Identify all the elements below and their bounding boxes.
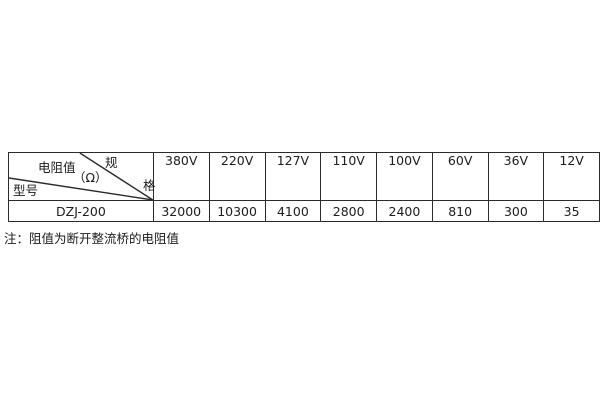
value-cell: 810 — [432, 201, 488, 222]
value-cell: 32000 — [153, 201, 209, 222]
column-header-100v: 100V — [377, 153, 433, 201]
corner-label-model: 型号 — [13, 185, 38, 198]
resistance-spec-table: 规 格 电阻值 （Ω） 型号 380V 220V 127V 110V 100V … — [8, 152, 600, 222]
note-text: 注：阻值为断开整流桥的电阻值 — [4, 228, 179, 247]
value-cell: 2400 — [377, 201, 433, 222]
value-cell: 2800 — [321, 201, 377, 222]
model-cell: DZJ-200 — [9, 201, 154, 222]
corner-label-unit: （Ω） — [73, 172, 108, 185]
corner-label-spec-bottom: 格 — [143, 180, 156, 193]
value-cell: 35 — [544, 201, 600, 222]
column-header-110v: 110V — [321, 153, 377, 201]
page: 规 格 电阻值 （Ω） 型号 380V 220V 127V 110V 100V … — [0, 0, 600, 400]
table-data-row: DZJ-200 32000 10300 4100 2800 2400 810 3… — [9, 201, 600, 222]
column-header-380v: 380V — [153, 153, 209, 201]
column-header-36v: 36V — [488, 153, 544, 201]
value-cell: 4100 — [265, 201, 321, 222]
column-header-12v: 12V — [544, 153, 600, 201]
corner-label-spec-top: 规 — [105, 157, 118, 170]
corner-label-resistance: 电阻值 — [38, 162, 76, 175]
table-header-row: 规 格 电阻值 （Ω） 型号 380V 220V 127V 110V 100V … — [9, 153, 600, 201]
column-header-60v: 60V — [432, 153, 488, 201]
column-header-220v: 220V — [209, 153, 265, 201]
column-header-127v: 127V — [265, 153, 321, 201]
value-cell: 10300 — [209, 201, 265, 222]
value-cell: 300 — [488, 201, 544, 222]
diagonal-header-cell: 规 格 电阻值 （Ω） 型号 — [9, 153, 154, 201]
